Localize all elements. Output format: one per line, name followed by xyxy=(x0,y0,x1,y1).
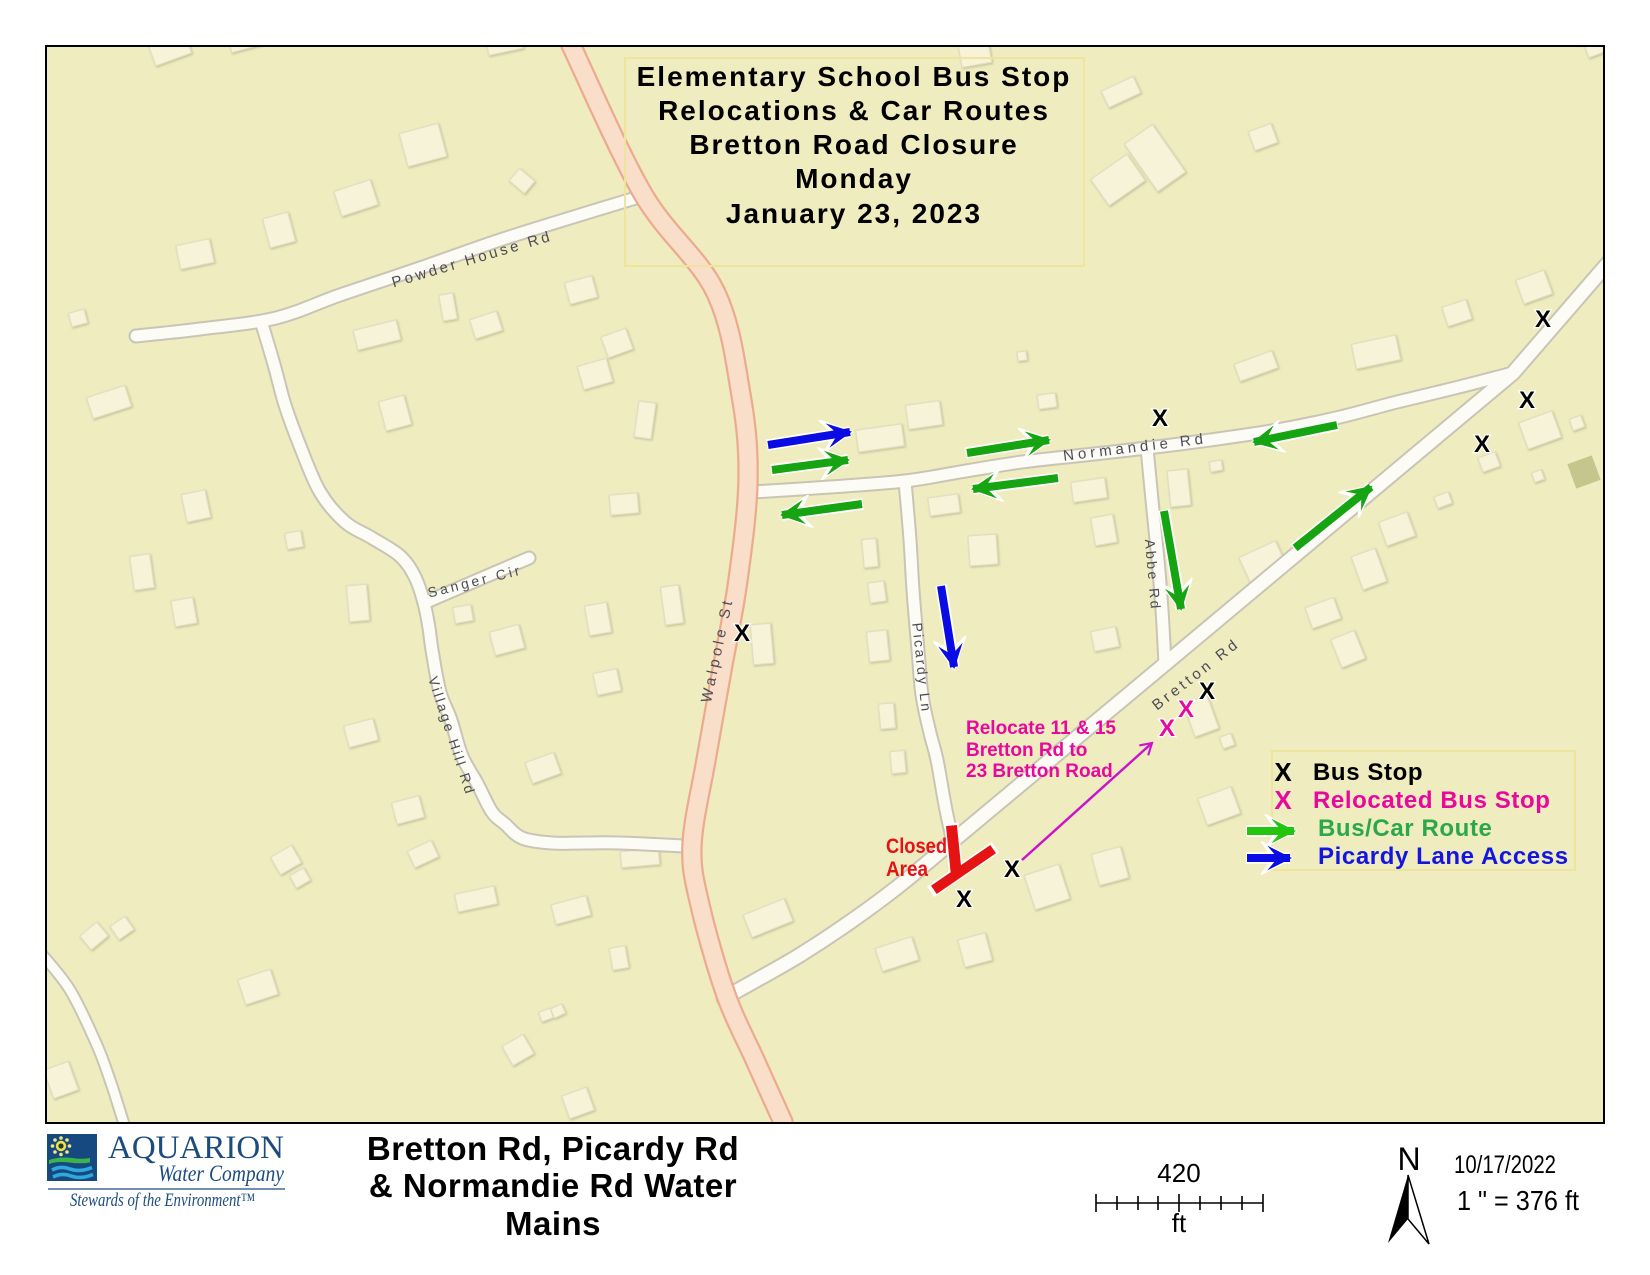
svg-text:X: X xyxy=(1004,856,1020,883)
svg-text:Area: Area xyxy=(886,858,928,881)
svg-text:Bus Stop: Bus Stop xyxy=(1313,759,1423,786)
svg-text:Bretton Rd to: Bretton Rd to xyxy=(966,740,1087,761)
svg-text:Relocated Bus Stop: Relocated Bus Stop xyxy=(1313,787,1551,814)
svg-text:Monday: Monday xyxy=(795,163,913,194)
svg-text:Elementary School Bus Stop: Elementary School Bus Stop xyxy=(637,61,1072,92)
svg-text:Relocations & Car Routes: Relocations & Car Routes xyxy=(658,95,1050,126)
svg-text:Stewards of the Environment™: Stewards of the Environment™ xyxy=(70,1190,255,1211)
svg-text:420: 420 xyxy=(1157,1158,1200,1188)
svg-text:X: X xyxy=(1178,696,1194,723)
svg-text:X: X xyxy=(1159,715,1175,742)
svg-text:X: X xyxy=(956,886,972,913)
svg-text:1 " = 376 ft: 1 " = 376 ft xyxy=(1457,1185,1579,1216)
svg-text:January 23, 2023: January 23, 2023 xyxy=(726,198,982,229)
svg-text:X: X xyxy=(1152,405,1168,432)
svg-text:& Normandie Rd Water: & Normandie Rd Water xyxy=(369,1167,737,1204)
svg-text:X: X xyxy=(1535,306,1551,333)
svg-text:Mains: Mains xyxy=(505,1205,601,1242)
svg-text:23 Bretton Road: 23 Bretton Road xyxy=(966,761,1113,782)
svg-text:X: X xyxy=(1274,757,1292,787)
svg-text:ft: ft xyxy=(1172,1208,1187,1238)
svg-text:Water Company: Water Company xyxy=(158,1161,285,1186)
svg-text:X: X xyxy=(1474,431,1490,458)
svg-text:Picardy Lane Access: Picardy Lane Access xyxy=(1318,843,1569,870)
svg-text:Bretton Road Closure: Bretton Road Closure xyxy=(689,129,1018,160)
svg-text:10/17/2022: 10/17/2022 xyxy=(1454,1151,1556,1179)
svg-text:X: X xyxy=(1519,387,1535,414)
svg-text:X: X xyxy=(734,620,750,647)
svg-text:Relocate 11 & 15: Relocate 11 & 15 xyxy=(966,718,1116,739)
svg-text:X: X xyxy=(1274,785,1292,815)
svg-text:X: X xyxy=(1199,678,1215,705)
svg-text:Bus/Car Route: Bus/Car Route xyxy=(1318,815,1493,842)
svg-text:Closed: Closed xyxy=(886,835,947,858)
svg-text:Bretton Rd, Picardy Rd: Bretton Rd, Picardy Rd xyxy=(367,1130,739,1167)
svg-text:N: N xyxy=(1397,1141,1420,1177)
